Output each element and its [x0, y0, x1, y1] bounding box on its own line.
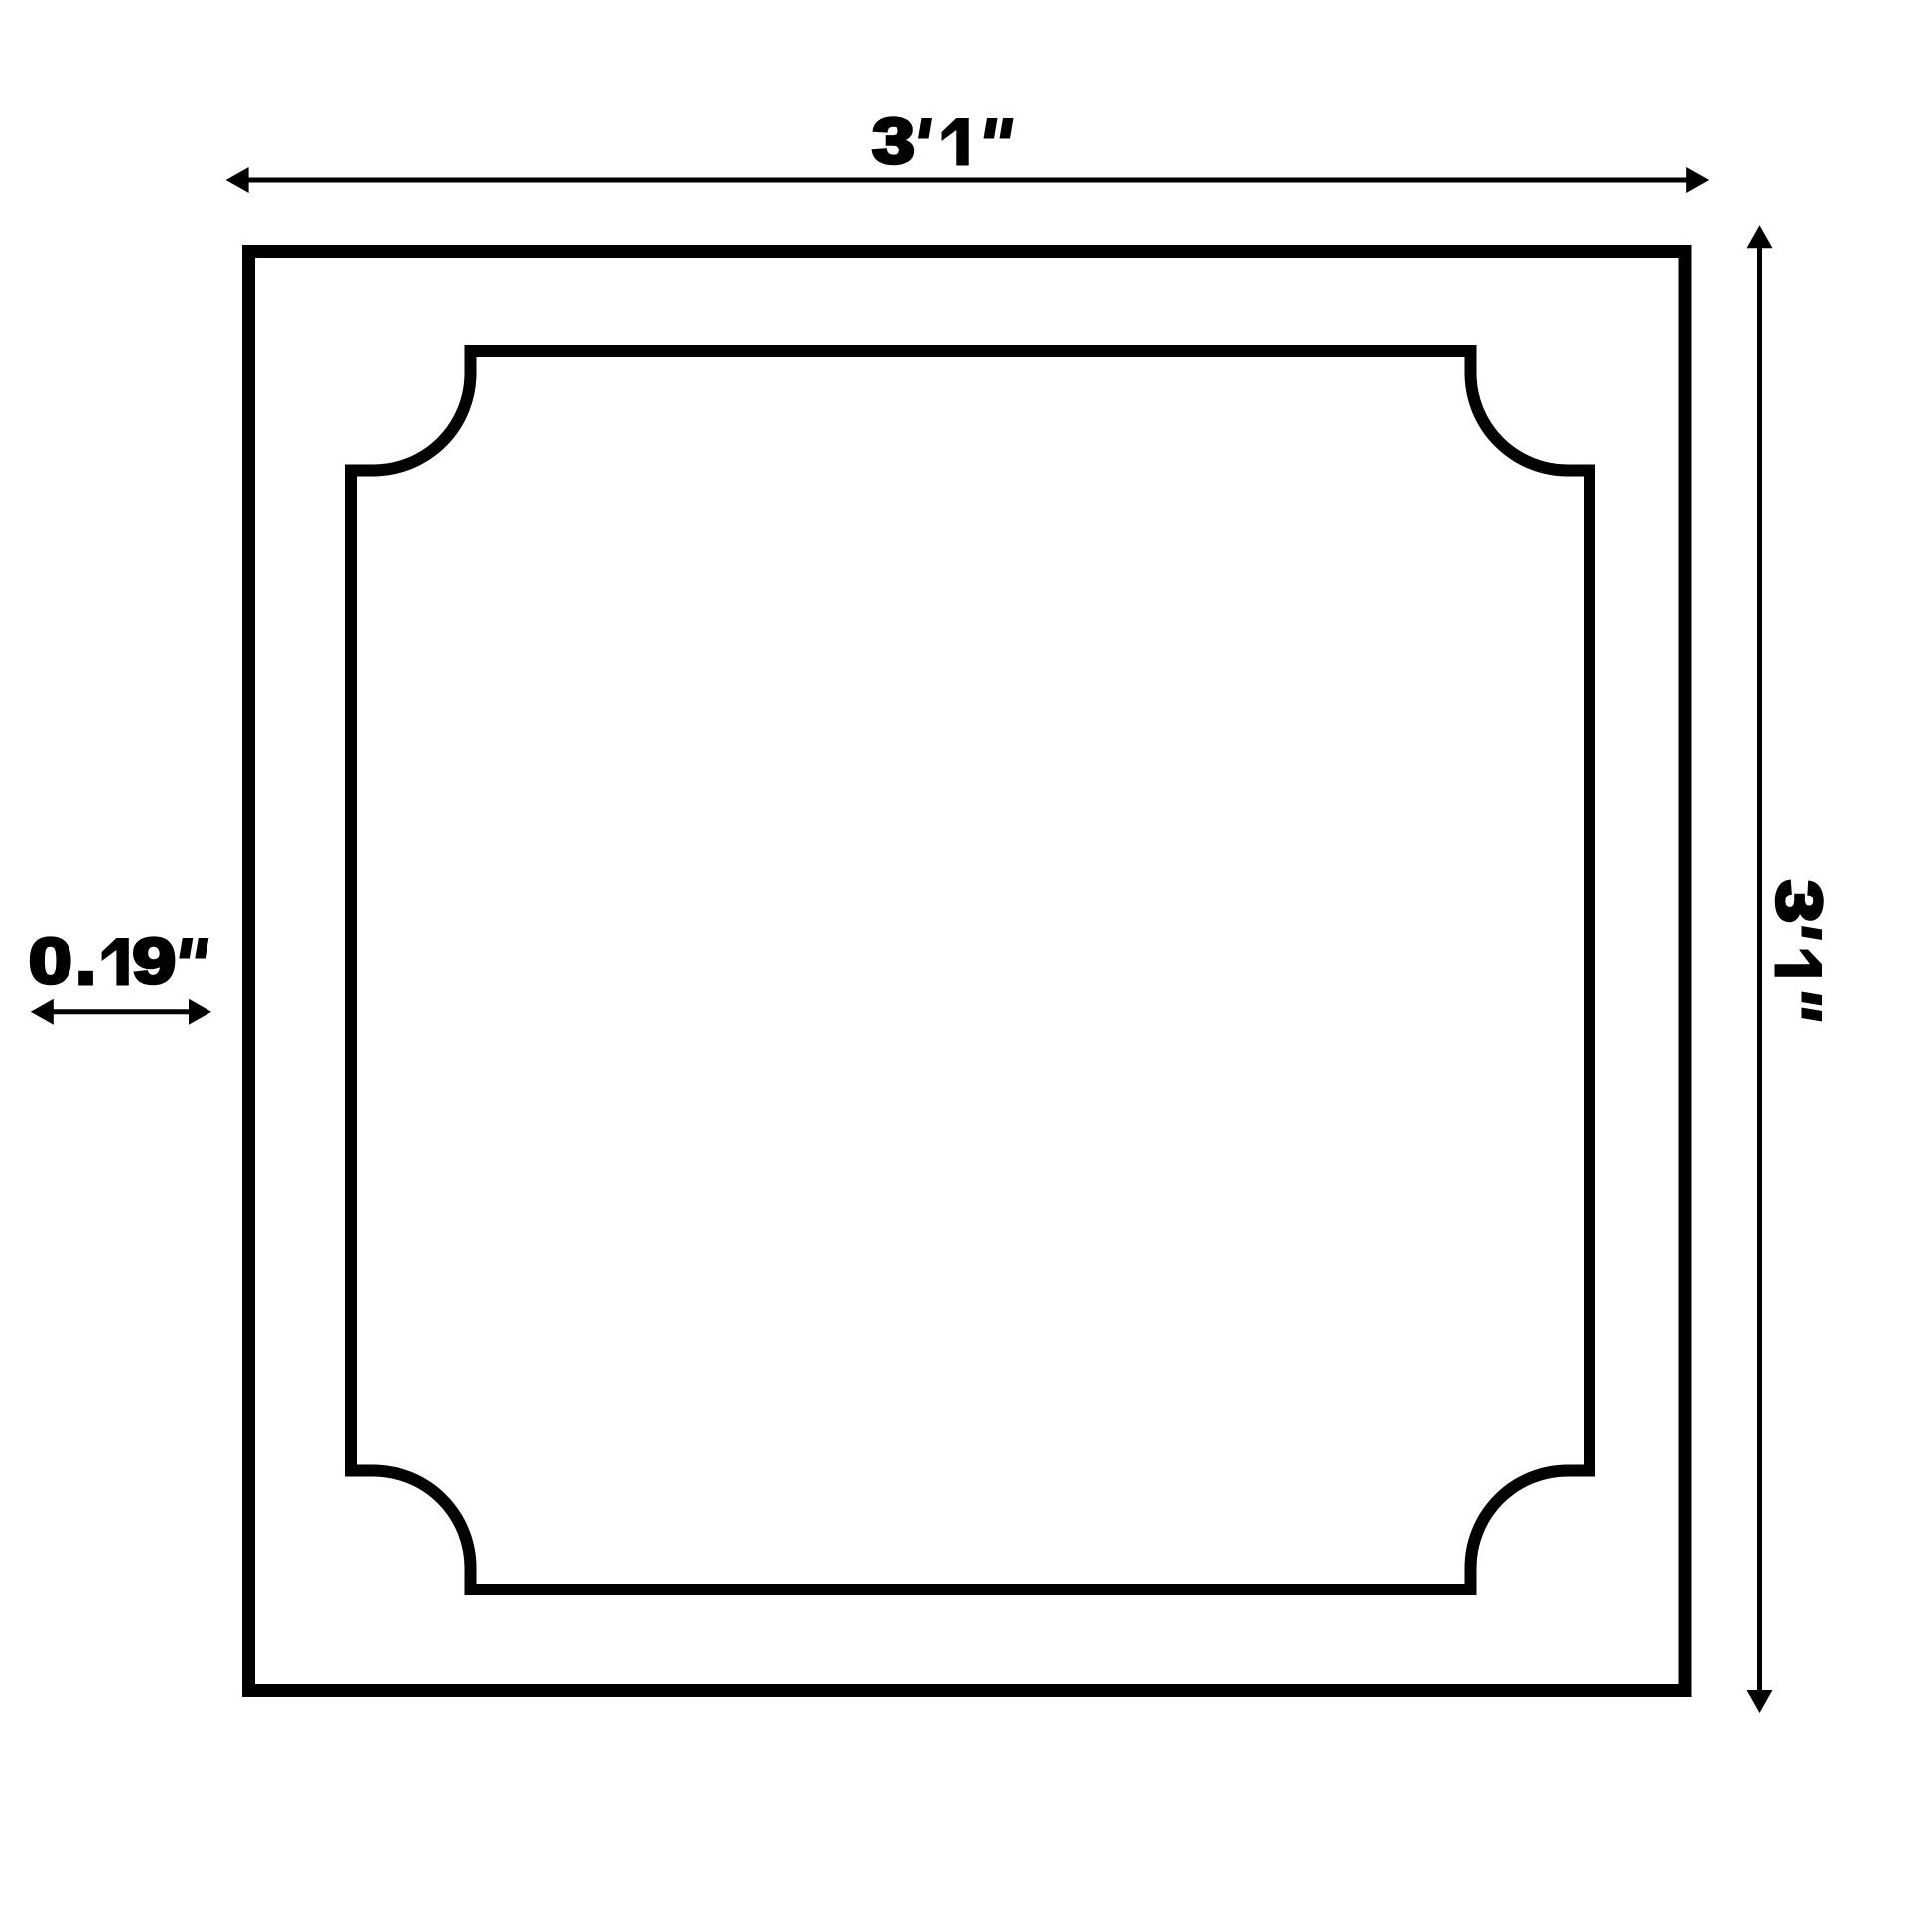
svg-text:9: 9: [132, 926, 176, 997]
svg-text:0: 0: [29, 926, 72, 997]
